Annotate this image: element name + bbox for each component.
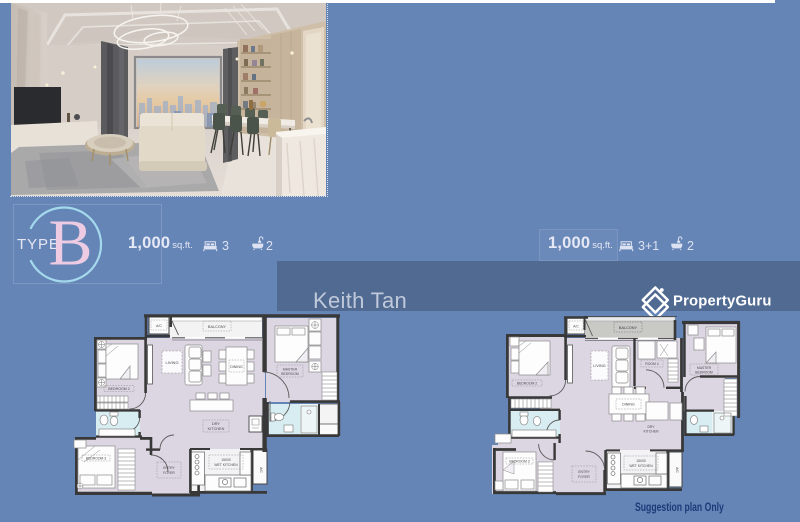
svg-text:WET KITCHEN: WET KITCHEN bbox=[629, 464, 653, 468]
svg-text:B: B bbox=[49, 207, 93, 280]
svg-text:LIVING: LIVING bbox=[593, 364, 605, 368]
svg-text:KITCHEN: KITCHEN bbox=[208, 427, 225, 431]
svg-text:DINING: DINING bbox=[230, 365, 243, 369]
svg-text:MASTER: MASTER bbox=[697, 366, 712, 370]
svg-text:BALCONY: BALCONY bbox=[208, 325, 227, 329]
svg-text:15000: 15000 bbox=[636, 459, 646, 463]
svg-text:A/C: A/C bbox=[259, 467, 263, 473]
svg-text:BEDROOM 3: BEDROOM 3 bbox=[86, 457, 106, 461]
svg-text:BALCONY: BALCONY bbox=[619, 326, 638, 330]
svg-text:15000: 15000 bbox=[221, 458, 231, 462]
svg-text:FOYER: FOYER bbox=[578, 475, 590, 479]
svg-text:BEDROOM: BEDROOM bbox=[281, 372, 299, 376]
svg-text:DINING: DINING bbox=[622, 403, 635, 407]
svg-text:ENTRY: ENTRY bbox=[578, 470, 590, 474]
svg-text:ROOM 4: ROOM 4 bbox=[645, 362, 658, 366]
svg-text:DRY: DRY bbox=[647, 425, 655, 429]
svg-text:BEDROOM 2: BEDROOM 2 bbox=[108, 387, 130, 391]
svg-text:BEDROOM: BEDROOM bbox=[695, 371, 713, 375]
svg-text:A/C: A/C bbox=[573, 325, 579, 329]
svg-text:A/C: A/C bbox=[675, 467, 679, 473]
svg-text:PropertyGuru: PropertyGuru bbox=[673, 294, 772, 310]
svg-text:KITCHEN: KITCHEN bbox=[644, 430, 659, 434]
svg-text:FOYER: FOYER bbox=[163, 471, 175, 475]
svg-text:DRY: DRY bbox=[212, 422, 220, 426]
svg-text:LIVING: LIVING bbox=[165, 360, 178, 365]
svg-text:WET KITCHEN: WET KITCHEN bbox=[214, 463, 238, 467]
svg-text:BEDROOM 3: BEDROOM 3 bbox=[509, 460, 529, 464]
svg-text:BEDROOM 2: BEDROOM 2 bbox=[517, 382, 537, 386]
svg-text:MASTER: MASTER bbox=[283, 368, 298, 372]
svg-text:A/C: A/C bbox=[156, 324, 162, 328]
svg-text:ENTRY: ENTRY bbox=[163, 466, 175, 470]
